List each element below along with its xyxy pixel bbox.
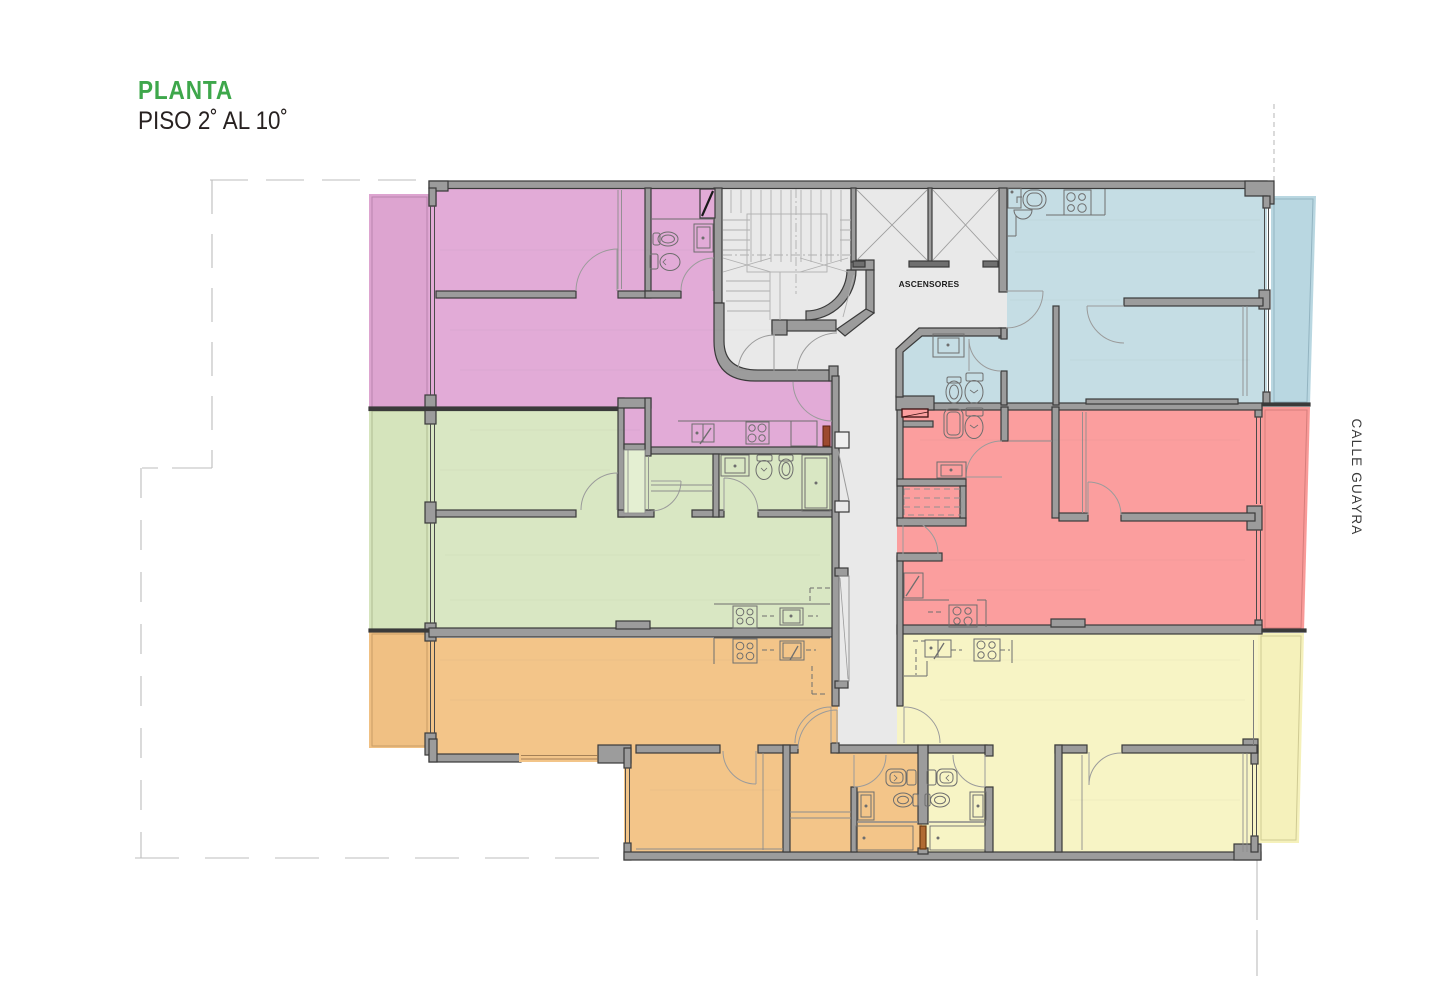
svg-text:PLANTA: PLANTA xyxy=(138,75,233,105)
svg-text:PISO 2˚ AL 10˚: PISO 2˚ AL 10˚ xyxy=(138,107,288,135)
svg-text:CALLE GUAYRA: CALLE GUAYRA xyxy=(1349,419,1364,536)
svg-text:ASCENSORES: ASCENSORES xyxy=(899,279,960,289)
